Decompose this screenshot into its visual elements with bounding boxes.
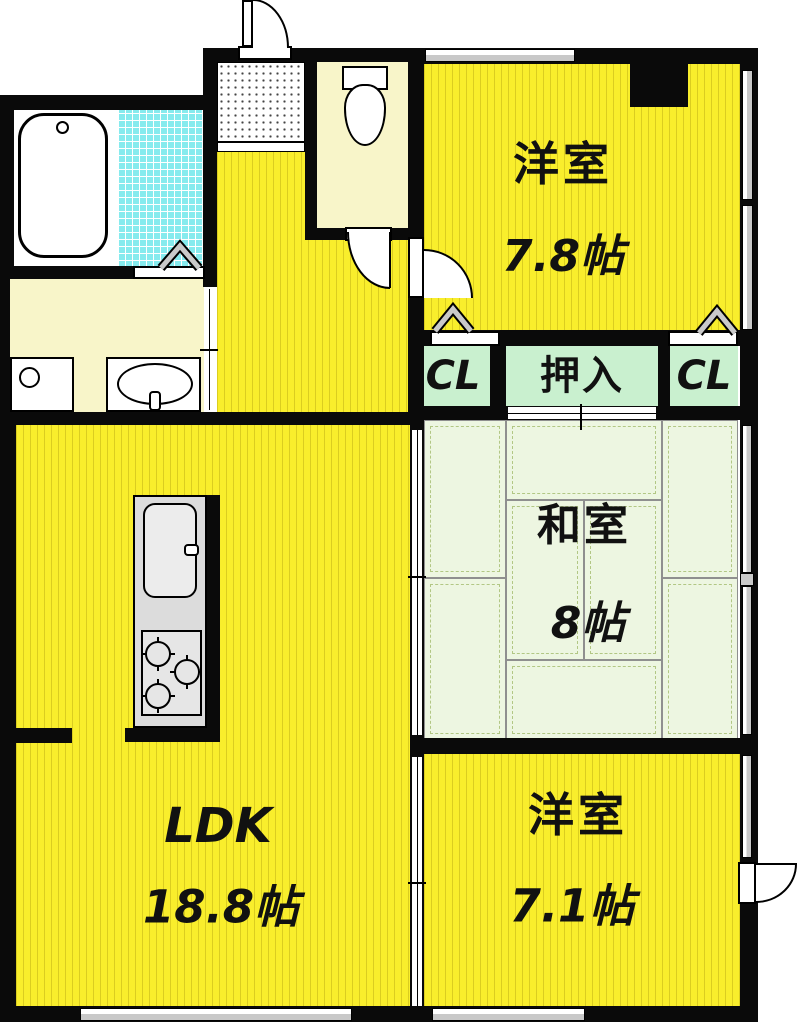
window-bottom-ldk <box>80 1008 352 1021</box>
wall-kitchen-side <box>207 495 220 742</box>
wall-left-ldk <box>0 412 16 1022</box>
entrance-door-sill <box>238 46 292 60</box>
window-right-washitsu-b <box>742 586 752 735</box>
window-right-west2 <box>742 755 752 858</box>
window-right-west1-a <box>742 70 753 200</box>
washer-pan <box>10 357 74 412</box>
tatami-mat <box>506 660 662 740</box>
wall-bathroom-bottom <box>0 266 135 279</box>
tatami-mat <box>662 420 738 578</box>
west2-door-arc <box>756 864 796 902</box>
sliding-door-washitsu <box>412 430 422 735</box>
wall-entrance-west <box>203 48 217 287</box>
west1-door-leaf <box>408 237 424 298</box>
tatami-mat <box>662 578 738 740</box>
folding-door-icon <box>430 305 476 333</box>
entrance-step <box>217 142 305 152</box>
floor-plan: 洋室 7.8帖 CL 押入 CL 和室 8帖 LDK 18.8帖 洋室 7.1帖 <box>0 0 800 1029</box>
room-label-japanese-name: 和室 <box>537 504 631 548</box>
closet-right-label: CL <box>677 356 732 396</box>
window-mullion <box>740 573 754 586</box>
washer-drain <box>19 367 40 388</box>
wall-left-washroom <box>0 278 10 412</box>
wall-stub-ldk <box>0 728 72 743</box>
sliding-door-tick <box>408 576 426 578</box>
wall-pillar <box>630 55 688 107</box>
bathtub <box>18 113 108 258</box>
wall-hall-east <box>408 48 424 412</box>
oshiire-label: 押入 <box>540 356 624 396</box>
closet-left-label: CL <box>426 356 481 396</box>
bathtub-drain <box>56 121 69 134</box>
wall-kitchen-bottom <box>125 728 220 742</box>
wall-left-bathroom <box>0 95 14 278</box>
wall-bathroom-top <box>0 95 215 110</box>
sliding-door-tick <box>200 349 218 351</box>
tatami-mat <box>424 578 506 740</box>
fusuma-oshiire <box>508 407 656 419</box>
room-label-western2-name: 洋室 <box>528 792 628 838</box>
sliding-door-tick <box>408 882 426 884</box>
japanese-room-floor <box>424 420 738 740</box>
vanity-faucet <box>149 391 161 411</box>
entrance-door-leaf <box>242 0 253 47</box>
kitchen-sink-faucet <box>184 544 199 556</box>
room-label-western2-size: 7.1帖 <box>510 884 635 929</box>
wall-washitsu-west2 <box>410 738 758 754</box>
west1-door-arc <box>424 250 472 298</box>
room-label-western1-size: 7.8帖 <box>502 235 624 279</box>
room-label-western1-name: 洋室 <box>513 141 613 187</box>
folding-door-icon <box>156 242 204 270</box>
stove-burners-icon <box>141 630 202 716</box>
window-bottom-west2 <box>432 1008 585 1021</box>
wall-closet-divider1 <box>490 346 506 412</box>
room-label-japanese-size: 8帖 <box>551 602 626 646</box>
fusuma-tick <box>580 404 582 430</box>
window-right-washitsu-a <box>742 425 752 573</box>
entrance-genkan-floor <box>217 62 305 142</box>
wall-washroom-bottom <box>0 412 424 425</box>
window-top-west1 <box>425 49 575 62</box>
west2-door-sill <box>738 862 756 904</box>
tatami-mat <box>424 420 506 578</box>
closet-left-sill <box>430 331 500 346</box>
entrance-door-arc <box>253 0 288 48</box>
toilet-door-arc <box>348 230 392 290</box>
wall-closet-divider2 <box>658 346 670 412</box>
folding-door-icon <box>694 307 740 335</box>
wall-toilet-west <box>305 48 317 240</box>
room-label-ldk-size: 18.8帖 <box>143 885 299 930</box>
window-right-west1-b <box>742 205 753 330</box>
tatami-mat <box>506 420 662 500</box>
room-label-ldk-name: LDK <box>164 802 272 850</box>
